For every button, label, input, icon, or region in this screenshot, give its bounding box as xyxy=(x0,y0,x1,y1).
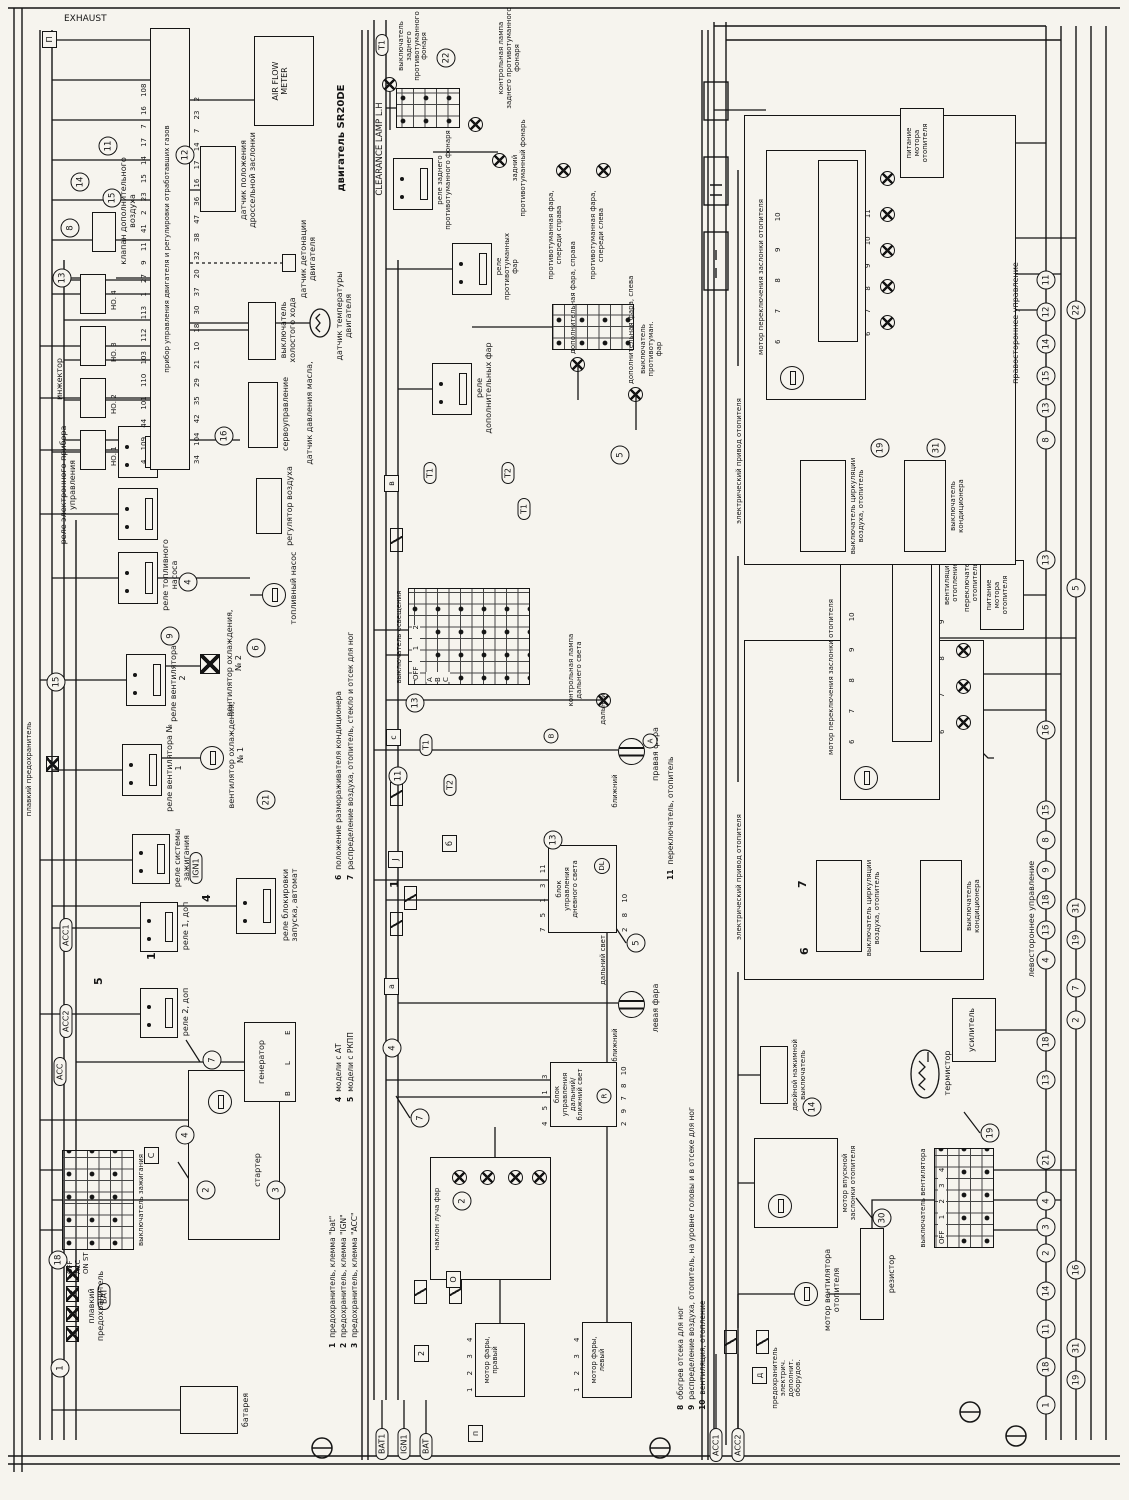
connector-tag-acc2: ACC2 xyxy=(60,1004,73,1038)
bus-callout: 7 xyxy=(1067,979,1086,998)
fusible-link-label: плавкий предохранитель xyxy=(88,1260,106,1352)
legend-note: 5модели с РКПП xyxy=(346,1032,355,1102)
bus-callout: 8 xyxy=(1037,831,1056,850)
bus-callout: 1 xyxy=(1037,1396,1056,1415)
tilt-lamp-icon xyxy=(532,1170,547,1185)
ac-switch-label-rhd: выключатель кондиционера xyxy=(950,446,966,566)
connector-tag-t1: T1 xyxy=(376,34,389,56)
callout-badge: 19 xyxy=(871,439,890,458)
legend-note: 6положение размораживателя кондиционера xyxy=(334,691,343,880)
fuse-icon xyxy=(756,1330,769,1354)
servo-label: сервоуправление xyxy=(282,368,291,460)
cooling-fan1-icon xyxy=(200,746,224,770)
ac-switch-box-rhd xyxy=(904,460,946,552)
connector-tag-ign1b: IGN1 xyxy=(398,1428,411,1460)
start-lockout-relay-label: реле блокировки запуска, автомат xyxy=(282,850,300,960)
injector1-box xyxy=(80,430,106,470)
battery-label: батарея xyxy=(242,1370,251,1450)
lamp-icon xyxy=(956,679,971,694)
double-push-switch-box xyxy=(760,1046,788,1104)
lamp-icon xyxy=(880,315,895,330)
high-beam-indicator-label: контрольная лампа дальнего света xyxy=(568,620,584,720)
fuel-pump-label: топливный насос xyxy=(290,538,299,638)
fuse-icon xyxy=(390,528,403,552)
bus-callout: 13 xyxy=(1037,921,1056,940)
connector-tag-acc: ACC xyxy=(54,1057,67,1086)
lamp-icon xyxy=(956,643,971,658)
connector-a-badge: A xyxy=(643,734,658,749)
recirc-switch-label: выключатель циркуляции воздуха, отопител… xyxy=(866,848,882,968)
flap-motor-icon xyxy=(854,766,878,790)
lamp-icon xyxy=(956,715,971,730)
rear-fog-lamp-icon xyxy=(492,153,507,168)
fusible-link2-label: плавкий предохранитель xyxy=(26,714,34,824)
drl-bottom-pins: 2 8 10 xyxy=(621,894,629,932)
fog-lamp-right-icon xyxy=(556,163,571,178)
oil-pressure-label: датчик давления масла, xyxy=(306,358,315,468)
left-headlamp-label: левая фара xyxy=(652,968,661,1048)
tilt-lamp-icon xyxy=(508,1170,523,1185)
callout-badge: 4 xyxy=(176,1126,195,1145)
idle-switch-box xyxy=(248,302,276,360)
beam-tilt-label: наклон луча фар xyxy=(434,1164,442,1274)
heater-fan-motor-label: мотор вентилятора отопителя xyxy=(824,1230,842,1350)
legend-note: 7распределение воздуха, отопитель, стекл… xyxy=(346,632,355,880)
tilt-lamp-icon xyxy=(452,1170,467,1185)
callout-badge: 5 xyxy=(611,446,630,465)
flap-motor-icon-rhd xyxy=(780,366,804,390)
connector-tag-t1: T1 xyxy=(420,734,433,756)
fuse-icon xyxy=(414,1280,427,1304)
relay1-box xyxy=(140,902,178,952)
aux-lamp-right-icon xyxy=(570,357,585,372)
headlight-motor-left-label: мотор фары, левый xyxy=(591,1324,607,1396)
callout-badge: 11 xyxy=(99,137,118,156)
light-switch-header: OFF 1 2 xyxy=(412,625,420,680)
ecu-relay-label: реле электронного прибора управления xyxy=(60,420,78,550)
aux-lamp-relay-label: реле дополнительных фар xyxy=(476,342,494,434)
ignition-switch-label: выключатель зажигания xyxy=(138,1150,146,1250)
right-headlamp-label: правая фара xyxy=(652,714,661,794)
knock-sensor-label: датчик детонации двигателя xyxy=(300,204,318,314)
ignition-switch-table xyxy=(62,1150,134,1250)
starter-motor-icon xyxy=(208,1090,232,1114)
fan-relay1-label: реле вентилятора № 1 xyxy=(166,724,184,812)
fan-relay1-box xyxy=(122,744,162,796)
ecu-top-pins: 4 109 44 101 110 103 112 113 1 27 9 11 4… xyxy=(140,84,148,464)
relay2-label: реле 2, доп xyxy=(182,972,191,1052)
wire-number: 6 xyxy=(798,947,811,955)
fusible-link-icon xyxy=(46,756,59,772)
bus-callout: 13 xyxy=(1037,1071,1056,1090)
legend-note: 11переключатель, отопитель xyxy=(666,757,675,880)
recirc-switch-box xyxy=(816,860,862,952)
connector-tag-t2: T2 xyxy=(502,462,515,484)
rear-fog-lamp-label: задний противотуманный фонарь xyxy=(512,112,528,224)
rear-fog-relay-label: реле заднего противотуманного фонаря xyxy=(437,124,453,236)
callout-badge: 2 xyxy=(197,1181,216,1200)
callout-badge: 13 xyxy=(544,831,563,850)
acc-fuse-label: предохранитель электрич. дополнит. обору… xyxy=(772,1328,803,1428)
ac-switch-label: выключатель кондиционера xyxy=(966,846,982,966)
connector-box-c2: с xyxy=(386,729,401,746)
legend-note: 4модели с АТ xyxy=(334,1043,343,1102)
callout-badge: 6 xyxy=(247,639,266,658)
low-beam-label: ближний xyxy=(612,1020,620,1070)
headlight-motor-right-label: мотор фары, правый xyxy=(484,1325,500,1395)
bus-callout: 9 xyxy=(1037,861,1056,880)
start-lockout-relay-box xyxy=(236,878,276,934)
callout-badge: 13 xyxy=(406,694,425,713)
hilo-top-pins: 4 5 1 3 xyxy=(541,1075,549,1127)
bus-callout: 12 xyxy=(1037,303,1056,322)
recirc-switch-label-rhd: выключатель циркуляции воздуха, отопител… xyxy=(850,446,866,566)
connector-box-p2: п xyxy=(468,1425,483,1442)
rear-fog-indicator-label: контрольная лампа заднего противотуманно… xyxy=(498,6,521,110)
fuse-icon xyxy=(724,1330,737,1354)
fog-switch-table xyxy=(552,304,634,350)
cooling-fan2-icon xyxy=(200,654,220,674)
fuse-icon xyxy=(66,1286,79,1302)
connector-tag-batb: BAT xyxy=(420,1433,433,1460)
electric-drive-label-rhd: электрический привод отопителя xyxy=(736,366,744,556)
callout-badge: 21 xyxy=(257,791,276,810)
amplifier-label: усилитель xyxy=(968,1000,977,1060)
callout-badge: 15 xyxy=(47,673,66,692)
legend-note: 2предохранитель, клемма "IGN" xyxy=(339,1214,348,1348)
intake-flap-motor-icon xyxy=(768,1194,792,1218)
fuel-pump-relay-label: реле топливного насоса xyxy=(162,530,180,620)
callout-badge: 16 xyxy=(215,427,234,446)
ignition-relay-box xyxy=(132,834,170,884)
rear-fog-switch-table xyxy=(396,88,460,128)
bus-callout: 31 xyxy=(1067,1339,1086,1358)
callout-badge: 15 xyxy=(103,189,122,208)
bus-callout: 13 xyxy=(1037,399,1056,418)
connector-box-o: О xyxy=(446,1271,461,1288)
bus-callout: 8 xyxy=(1037,431,1056,450)
bus-callout: 2 xyxy=(1067,1011,1086,1030)
knock-sensor-box xyxy=(282,254,296,272)
fog-lamp-left-icon xyxy=(596,163,611,178)
callout-badge: 14 xyxy=(803,1098,822,1117)
legend-note: 1предохранитель, клемма "bat" xyxy=(328,1216,337,1348)
connector-box-c: C xyxy=(144,1147,159,1164)
bus-callout: 11 xyxy=(1037,271,1056,290)
callout-badge: 1 xyxy=(51,1359,70,1378)
bus-callout: 21 xyxy=(1037,1151,1056,1170)
injector-label: инжектор xyxy=(56,344,65,414)
rear-fog-relay-box xyxy=(393,158,433,210)
callout-badge: 5 xyxy=(627,934,646,953)
air-regulator-box xyxy=(256,478,282,534)
fan-relay2-label: реле вентилятора № 2 xyxy=(170,634,188,722)
bus-callout: 22 xyxy=(1067,301,1086,320)
generator-pins: B L E xyxy=(284,1030,292,1096)
connector-box-j: J xyxy=(388,851,403,868)
heater-fan-motor-icon xyxy=(794,1282,818,1306)
callout-badge: 18 xyxy=(49,1251,68,1270)
bus-callout: 14 xyxy=(1037,1282,1056,1301)
connector-tag-ign1: IGN1 xyxy=(190,852,203,884)
aux-air-valve-box xyxy=(92,212,116,252)
injector1-label: НО. 1 xyxy=(110,446,118,466)
flap-motor-label-rhd: мотор переключения заслонки отопителя xyxy=(758,152,766,402)
battery-box xyxy=(180,1386,238,1434)
bus-callout: 14 xyxy=(1037,335,1056,354)
flap-switch-numbers-rhd: 6 7 8 9 10 11 xyxy=(864,209,872,336)
lamp-icon xyxy=(880,207,895,222)
flap-motor-pins-rhd: 6 7 8 9 10 xyxy=(774,212,782,344)
wire-number: 1 xyxy=(145,952,158,960)
generator-label: генератор xyxy=(258,1026,267,1098)
bus-callout: 19 xyxy=(1067,931,1086,950)
connector-box-v: в xyxy=(384,475,399,492)
legend-note: 8обогрев отсека для ног xyxy=(676,1306,685,1410)
resistor-label: резистор xyxy=(888,1244,897,1304)
light-switch-rows: А В С xyxy=(426,672,450,682)
bus-callout: 15 xyxy=(1037,367,1056,386)
connector-box-d: д xyxy=(752,1367,767,1384)
connector-tag-t1: T1 xyxy=(424,462,437,484)
fan-switch-label: выключатель вентилятора xyxy=(920,1140,928,1256)
light-switch-table xyxy=(408,588,530,685)
intake-flap-motor-label: мотор впускной заслонки отопителя xyxy=(842,1124,858,1242)
bus-callout: 4 xyxy=(1037,1192,1056,1211)
fog-lamp-left-label: противотуманная фара, спереди слева xyxy=(590,180,606,290)
drl-top-pins: 7 5 1 3 11 xyxy=(539,864,547,932)
connector-tag-t1: T1 xyxy=(518,498,531,520)
flap-switch-numbers: 6 7 8 9 xyxy=(938,620,946,735)
tilt-lamp-icon xyxy=(480,1170,495,1185)
fuse-icon xyxy=(390,912,403,936)
injector2-box xyxy=(80,378,106,418)
high-beam-indicator-icon xyxy=(596,693,611,708)
bus-callout: 13 xyxy=(1037,551,1056,570)
lamp-icon xyxy=(880,243,895,258)
temp-sensor-label: датчик температуры двигателя xyxy=(336,260,354,372)
bus-callout: 5 xyxy=(1067,579,1086,598)
flap-motor-label: мотор переключения заслонки отопителя xyxy=(828,552,836,802)
ecu-label: прибор управления двигателя и регулировк… xyxy=(164,36,172,462)
high-beam-label: дальний свет xyxy=(600,932,608,988)
right-headlamp-icon xyxy=(618,738,645,765)
callout-badge: 4 xyxy=(179,573,198,592)
hilo-r-badge: R xyxy=(597,1089,612,1104)
callout-badge: 12 xyxy=(176,146,195,165)
scanned-wiring-diagram-page: батарея BAT плавкий предохранитель старт… xyxy=(0,0,1129,1500)
tps-label: датчик положения дроссельной заслонки xyxy=(240,118,258,242)
clearance-lamp-label: CLEARANCE LAMP L.H xyxy=(376,84,386,214)
bus-callout: 19 xyxy=(1067,1371,1086,1390)
bus-callout: 15 xyxy=(1037,801,1056,820)
injector2-label: НО. 2 xyxy=(110,394,118,414)
fuse-icon xyxy=(66,1326,79,1342)
bus-callout: 3 xyxy=(1037,1218,1056,1237)
fuse-icon xyxy=(66,1306,79,1322)
injector4-box xyxy=(80,274,106,314)
idle-switch-label: выключатель холостого хода xyxy=(280,284,298,376)
callout-badge: 22 xyxy=(437,49,456,68)
bus-callout: 4 xyxy=(1037,951,1056,970)
starter-label: стартер xyxy=(254,1130,263,1210)
fan-relay2-box xyxy=(126,654,166,706)
callout-badge: 8 xyxy=(61,219,80,238)
callout-badge: 7 xyxy=(203,1051,222,1070)
double-push-switch-label: двойной нажимной выключатель xyxy=(792,1014,808,1136)
legend-note: 9распределение воздуха, отопитель, на ур… xyxy=(687,1107,696,1410)
bus-callout: 18 xyxy=(1037,1033,1056,1052)
fog-relay-label: реле противотуманных фар xyxy=(496,219,519,314)
connector-tag-bat1: BAT1 xyxy=(376,1428,389,1460)
fuel-pump-icon xyxy=(262,583,286,607)
lamp-icon xyxy=(880,279,895,294)
wiring-diagram-scene: батарея BAT плавкий предохранитель старт… xyxy=(0,0,1129,1500)
lhd-label: левостороннее управление xyxy=(1028,834,1037,1004)
cooling-fan2-label: вентилятор охлаждения, № 2 xyxy=(226,608,244,718)
aux-lamp-relay-box xyxy=(432,363,472,415)
fan-switch-positions: OFF 1 2 3 4 xyxy=(938,1168,946,1244)
lamp-icon xyxy=(880,171,895,186)
bus-callout: 16 xyxy=(1037,721,1056,740)
injector3-label: НО. 3 xyxy=(110,342,118,362)
ignition-switch-positions: OFF ACC ON ST xyxy=(66,1252,90,1274)
light-switch-label: выключатель освещения xyxy=(396,582,404,692)
engine-title-label: двигатель SR20DE xyxy=(336,68,347,208)
fuse-icon xyxy=(390,782,403,806)
wire-number: 5 xyxy=(92,977,105,985)
fuel-pump-relay-box xyxy=(118,552,158,604)
callout-badge: 14 xyxy=(71,173,90,192)
callout-badge: 11 xyxy=(389,767,408,786)
hilo-bottom-pins: 2 9 7 8 10 xyxy=(620,1066,628,1126)
air-flow-meter-label: AIR FLOW METER xyxy=(272,40,290,122)
bus-callout: 18 xyxy=(1037,1358,1056,1377)
callout-badge: 2 xyxy=(453,1192,472,1211)
clearance-lamp-icon xyxy=(382,77,397,92)
rhd-label: правостороннее управление xyxy=(1012,228,1021,418)
legend-note: 10вентиляция, отопление xyxy=(698,1301,707,1410)
intake-flap-motor-box xyxy=(754,1138,838,1228)
flap-switch-bank-rhd xyxy=(818,160,858,342)
bus-callout: 18 xyxy=(1037,891,1056,910)
connector-box-b: б xyxy=(442,835,457,852)
connector-b-badge: B xyxy=(544,729,559,744)
bus-callout: 16 xyxy=(1067,1261,1086,1280)
servo-box xyxy=(248,382,278,448)
callout-badge: 30 xyxy=(873,1209,892,1228)
bus-callout: 2 xyxy=(1037,1244,1056,1263)
connector-tag-t2: T2 xyxy=(444,774,457,796)
rear-fog-switch-label: выключатель заднего противотуманного фон… xyxy=(398,6,429,86)
flap-switch-bank xyxy=(892,560,932,742)
connector-tag-acc2b: ACC2 xyxy=(732,1428,745,1462)
callout-badge: 13 xyxy=(53,269,72,288)
fog-relay-box xyxy=(452,243,492,295)
callout-badge: 7 xyxy=(411,1109,430,1128)
resistor-box xyxy=(860,1228,884,1320)
legend-note: 3предохранитель, клемма "ACC" xyxy=(350,1213,359,1348)
flap-motor-pins: 6 7 8 9 10 xyxy=(848,612,856,744)
callout-badge: 9 xyxy=(161,627,180,646)
ac-switch-box xyxy=(920,860,962,952)
connector-box-a: а xyxy=(384,978,399,995)
heater-feed-label: питание мотора отопителя xyxy=(986,562,1009,628)
fog-lamp-right-label: противотуманная фара, спереди справа xyxy=(548,180,564,290)
callout-badge: 31 xyxy=(927,439,946,458)
wire-number: 7 xyxy=(796,880,809,888)
exhaust-label: EXHAUST xyxy=(64,14,107,24)
headlight-motor-left-pins: 1 2 3 4 xyxy=(573,1338,581,1393)
ecu-relay-box xyxy=(118,488,158,540)
relay2-box xyxy=(140,988,178,1038)
hilo-control-label: блок управления дальний/ ближний свет xyxy=(554,1064,585,1125)
drl-control-label: блок управления дневного света xyxy=(556,848,579,930)
callout-badge: 19 xyxy=(981,1124,1000,1143)
wire-number: 1 xyxy=(388,880,401,888)
fuse-icon xyxy=(404,886,417,910)
rear-fog-indicator-icon xyxy=(468,117,483,132)
aux-air-valve-label: клапан дополнительного воздуха xyxy=(120,156,138,266)
connector-tag-acc1: ACC1 xyxy=(60,918,73,952)
headlight-motor-right-pins: 1 2 3 4 xyxy=(466,1338,474,1393)
injector4-label: НО. 4 xyxy=(110,290,118,310)
callout-badge: 4 xyxy=(383,1039,402,1058)
bus-callout: 11 xyxy=(1037,1320,1056,1339)
tps-box xyxy=(200,146,236,212)
connector-tag-acc1b: ACC1 xyxy=(710,1428,723,1462)
recirc-switch-box-rhd xyxy=(800,460,846,552)
callout-badge: 3 xyxy=(267,1181,286,1200)
high-beam-label: дальний xyxy=(600,684,608,734)
drl-badge: DL xyxy=(594,858,610,874)
bus-callout: 31 xyxy=(1067,899,1086,918)
left-headlamp-icon xyxy=(618,991,645,1018)
injector3-box xyxy=(80,326,106,366)
low-beam-label: ближний xyxy=(612,766,620,816)
fog-switch-label: выключатель противотуман. фар xyxy=(640,294,663,404)
air-regulator-label: регулятор воздуха xyxy=(286,460,295,552)
connector-box-p: П xyxy=(42,31,57,48)
electric-drive-label: электрический привод отопителя xyxy=(736,782,744,972)
connector-box-2: 2 xyxy=(414,1345,429,1362)
wire-number: 4 xyxy=(200,894,213,902)
heater-feed-label-rhd: питание мотора отопителя xyxy=(906,110,929,176)
